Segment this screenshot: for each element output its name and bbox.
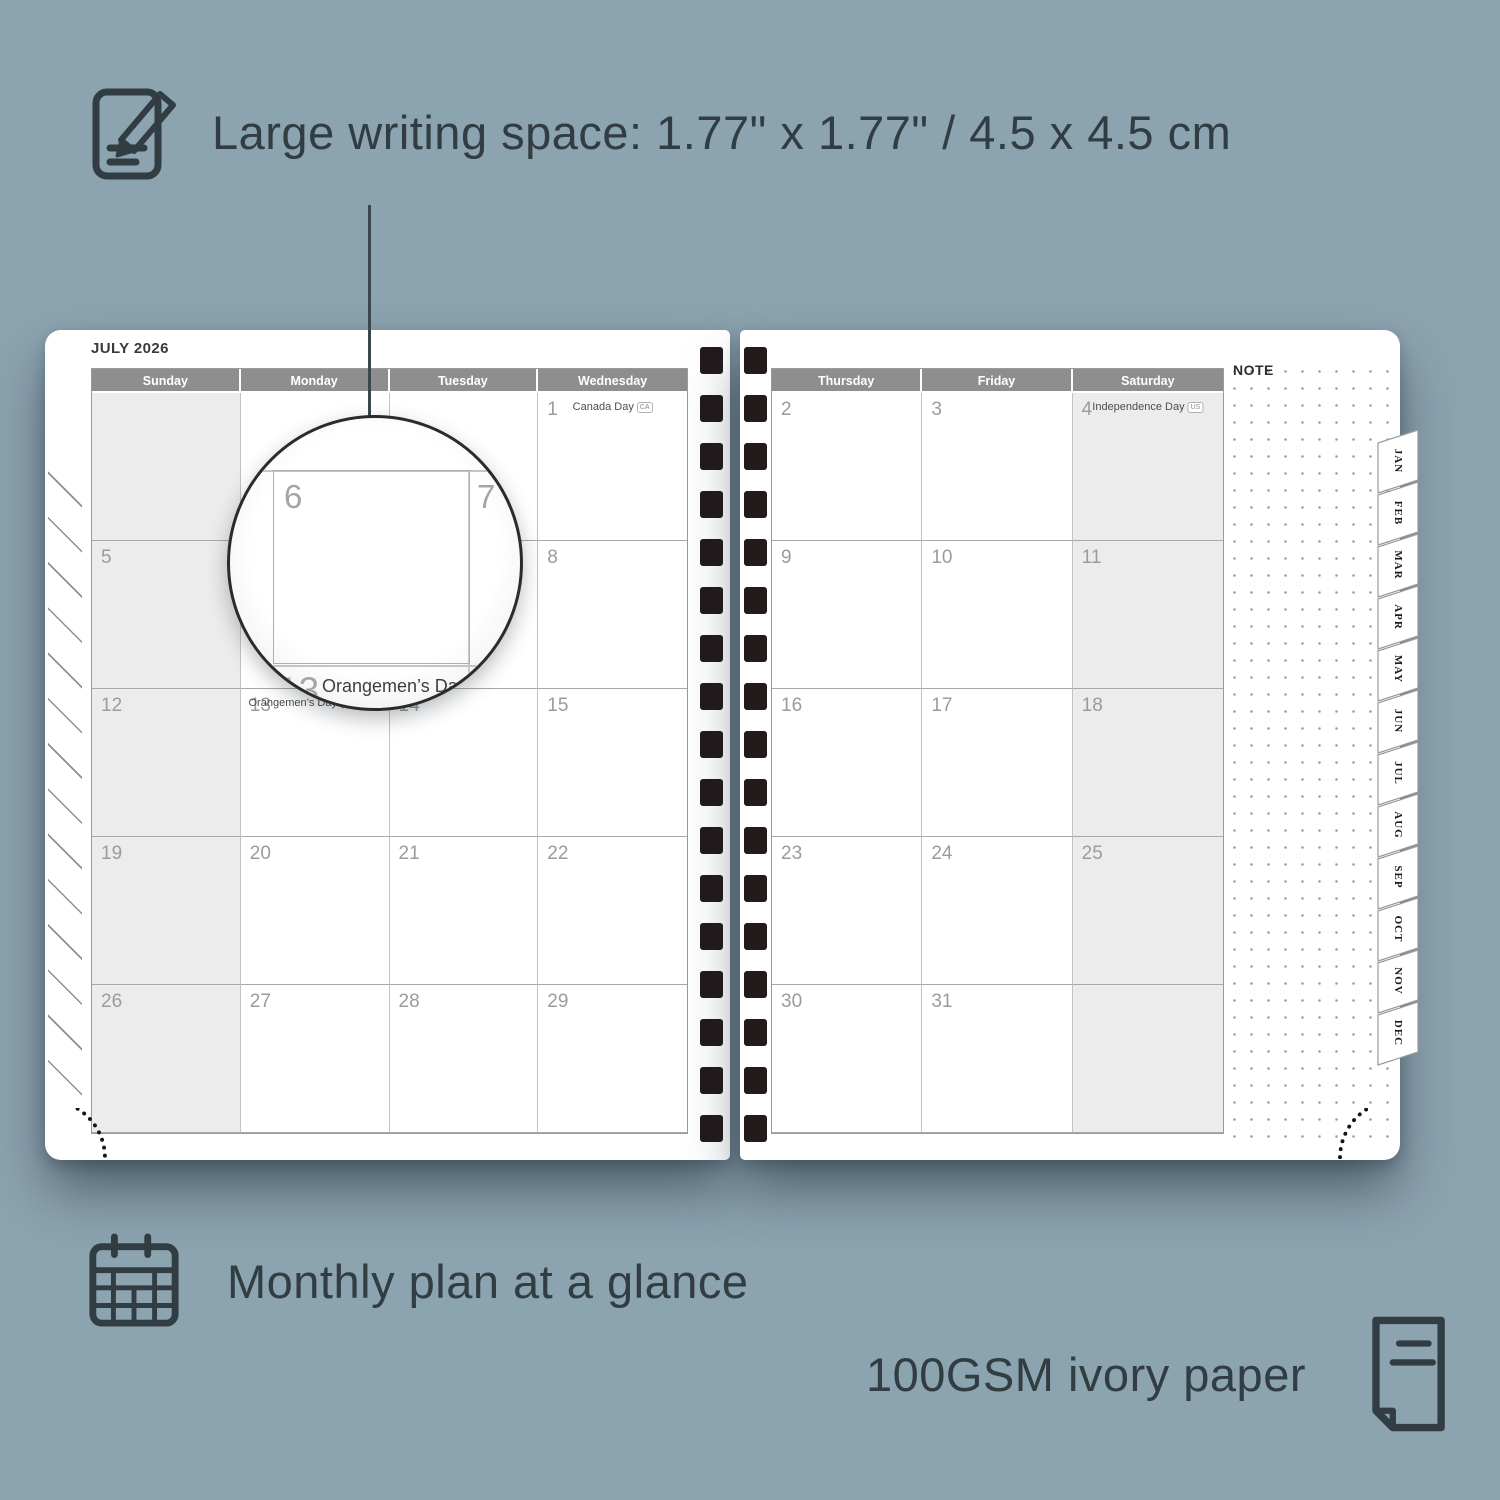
calendar-cell-14: 14 — [390, 689, 539, 837]
spiral-hole — [700, 827, 723, 854]
writing-space-label: Large writing space: 1.77" x 1.77" / 4.5… — [212, 105, 1231, 160]
month-tab-index: JANFEBMARAPRMAYJUNJULAUGSEPOCTNOVDEC — [1378, 430, 1422, 1090]
date-number: 11 — [1073, 541, 1223, 569]
magnified-date: 7 — [477, 478, 495, 516]
month-tab-label: SEP — [1392, 865, 1404, 888]
date-number: 20 — [241, 837, 389, 865]
writing-space-annotation: Large writing space: 1.77" x 1.77" / 4.5… — [88, 80, 1231, 184]
month-tab-label: JUL — [1392, 761, 1404, 785]
date-number: 26 — [92, 985, 240, 1013]
planner-right-page: ThursdayFridaySaturday234Independence Da… — [740, 330, 1400, 1160]
calendar-cell-9: 9 — [772, 541, 922, 689]
date-number: 31 — [922, 985, 1071, 1013]
date-number: 8 — [538, 541, 687, 569]
month-tab-label: OCT — [1392, 916, 1404, 943]
calendar-cell-22: 22 — [538, 837, 687, 985]
spiral-hole — [700, 443, 723, 470]
calendar-cell — [92, 393, 241, 541]
spiral-hole — [744, 491, 767, 518]
day-header-friday: Friday — [922, 369, 1072, 393]
calendar-cell-25: 25 — [1073, 837, 1223, 985]
monthly-plan-label: Monthly plan at a glance — [227, 1254, 749, 1309]
spiral-hole — [744, 827, 767, 854]
calendar-cell-15: 15 — [538, 689, 687, 837]
date-number: 9 — [772, 541, 921, 569]
date-number: 2 — [772, 393, 921, 421]
spiral-hole — [700, 347, 723, 374]
day-header-thursday: Thursday — [772, 369, 922, 393]
spiral-hole — [744, 443, 767, 470]
calendar-cell-16: 16 — [772, 689, 922, 837]
holiday-text: Orangemen’s Day (n.i.) — [322, 676, 508, 697]
calendar-cell-27: 27 — [241, 985, 390, 1133]
month-title: JULY 2026 — [91, 340, 169, 357]
day-header-tuesday: Tuesday — [390, 369, 539, 393]
spiral-hole — [744, 635, 767, 662]
spiral-hole — [744, 587, 767, 614]
magnified-date: 6 — [284, 478, 302, 516]
page-edge-hatch — [48, 460, 82, 1105]
spiral-hole — [744, 1067, 767, 1094]
spiral-binding-right — [744, 330, 768, 1160]
calendar-cell-20: 20 — [241, 837, 390, 985]
spiral-hole — [700, 683, 723, 710]
paper-annotation: 100GSM ivory paper — [866, 1312, 1450, 1436]
calendar-cell-2: 2 — [772, 393, 922, 541]
monthly-plan-annotation: Monthly plan at a glance — [85, 1233, 749, 1329]
spiral-hole — [700, 923, 723, 950]
note-label: NOTE — [1233, 362, 1274, 378]
calendar-grid-right: ThursdayFridaySaturday234Independence Da… — [771, 368, 1224, 1134]
month-tab-label: JUN — [1392, 709, 1404, 733]
paper-icon — [1344, 1312, 1450, 1436]
month-tab-label: AUG — [1392, 811, 1404, 838]
spiral-hole — [744, 1115, 767, 1142]
month-tab-label: FEB — [1392, 501, 1404, 525]
calendar-cell-21: 21 — [390, 837, 539, 985]
calendar-cell-23: 23 — [772, 837, 922, 985]
date-number: 23 — [772, 837, 921, 865]
calendar-cell-4: 4Independence DayUS — [1073, 393, 1223, 541]
calendar-grid-icon — [85, 1233, 183, 1329]
day-header-wednesday: Wednesday — [538, 369, 687, 393]
date-number: 24 — [922, 837, 1071, 865]
date-number: 10 — [922, 541, 1071, 569]
calendar-cell-30: 30 — [772, 985, 922, 1133]
spiral-hole — [700, 491, 723, 518]
perforation-arc — [1338, 1108, 1400, 1160]
paper-label: 100GSM ivory paper — [866, 1347, 1306, 1402]
month-tab-label: DEC — [1392, 1020, 1404, 1046]
date-number: 27 — [241, 985, 389, 1013]
calendar-cell-3: 3 — [922, 393, 1072, 541]
calendar-cell-13: 13Orangemen’s Day (n.i.)UK — [241, 689, 390, 837]
spiral-hole — [744, 923, 767, 950]
holiday-label: Independence DayUS — [1092, 401, 1203, 413]
date-number: 17 — [922, 689, 1071, 717]
spiral-hole — [744, 395, 767, 422]
spiral-hole — [700, 1019, 723, 1046]
magnified-date: 13 — [278, 670, 319, 711]
notepad-pencil-icon — [88, 80, 188, 184]
date-number: 28 — [390, 985, 538, 1013]
date-number: 29 — [538, 985, 687, 1013]
perforation-corner — [1280, 1108, 1400, 1160]
date-number: 15 — [538, 689, 687, 717]
country-badge: US — [1188, 402, 1204, 413]
calendar-cell-12: 12 — [92, 689, 241, 837]
spiral-hole — [700, 1067, 723, 1094]
calendar-cell-1: 1Canada DayCA — [538, 393, 687, 541]
perforation-arc — [45, 1108, 107, 1160]
spiral-hole — [700, 635, 723, 662]
magnifier-circle: 6 7 13 Orangemen’s Day (n.i.) UK — [227, 415, 523, 711]
spiral-hole — [744, 347, 767, 374]
calendar-cell-18: 18 — [1073, 689, 1223, 837]
spiral-hole — [700, 971, 723, 998]
spiral-hole — [744, 539, 767, 566]
spiral-hole — [744, 971, 767, 998]
day-header-saturday: Saturday — [1073, 369, 1223, 393]
calendar-cell-24: 24 — [922, 837, 1072, 985]
spiral-hole — [700, 1115, 723, 1142]
spiral-hole — [700, 779, 723, 806]
spiral-hole — [700, 395, 723, 422]
date-number: 12 — [92, 689, 240, 717]
calendar-cell-5: 5 — [92, 541, 241, 689]
month-tab-label: MAY — [1392, 655, 1404, 683]
note-dot-grid: NOTE — [1233, 366, 1390, 1138]
holiday-label: Canada DayCA — [573, 401, 653, 413]
magnified-gridline — [230, 665, 520, 667]
calendar-cell-8: 8 — [538, 541, 687, 689]
calendar-cell-11: 11 — [1073, 541, 1223, 689]
date-number: 3 — [922, 393, 1071, 421]
spiral-hole — [700, 539, 723, 566]
holiday-text: Canada Day — [573, 401, 634, 413]
spiral-hole — [744, 779, 767, 806]
spiral-hole — [700, 587, 723, 614]
calendar-cell-31: 31 — [922, 985, 1072, 1133]
month-tab-label: NOV — [1392, 967, 1404, 994]
month-tab-label: MAR — [1392, 550, 1404, 579]
spiral-hole — [744, 1019, 767, 1046]
calendar-cell-17: 17 — [922, 689, 1072, 837]
date-number: 22 — [538, 837, 687, 865]
spiral-hole — [744, 683, 767, 710]
spiral-hole — [744, 731, 767, 758]
calendar-cell-19: 19 — [92, 837, 241, 985]
date-number: 5 — [92, 541, 240, 569]
calendar-cell-10: 10 — [922, 541, 1072, 689]
date-number: 30 — [772, 985, 921, 1013]
month-tab-label: JAN — [1392, 449, 1404, 473]
spiral-hole — [700, 731, 723, 758]
date-number: 16 — [772, 689, 921, 717]
country-badge: CA — [637, 402, 653, 413]
calendar-cell-29: 29 — [538, 985, 687, 1133]
spiral-hole — [700, 875, 723, 902]
calendar-cell — [1073, 985, 1223, 1133]
perforation-corner — [45, 1108, 165, 1160]
callout-line — [368, 205, 371, 421]
magnified-writing-space — [273, 470, 470, 664]
date-number: 21 — [390, 837, 538, 865]
date-number: 18 — [1073, 689, 1223, 717]
date-number: 19 — [92, 837, 240, 865]
spiral-binding-left — [700, 330, 724, 1160]
spiral-hole — [744, 875, 767, 902]
month-tab-label: APR — [1392, 604, 1404, 630]
day-header-sunday: Sunday — [92, 369, 241, 393]
calendar-cell-28: 28 — [390, 985, 539, 1133]
magnified-holiday-label: Orangemen’s Day (n.i.) UK — [322, 676, 523, 697]
date-number: 25 — [1073, 837, 1223, 865]
holiday-text: Independence Day — [1092, 401, 1184, 413]
